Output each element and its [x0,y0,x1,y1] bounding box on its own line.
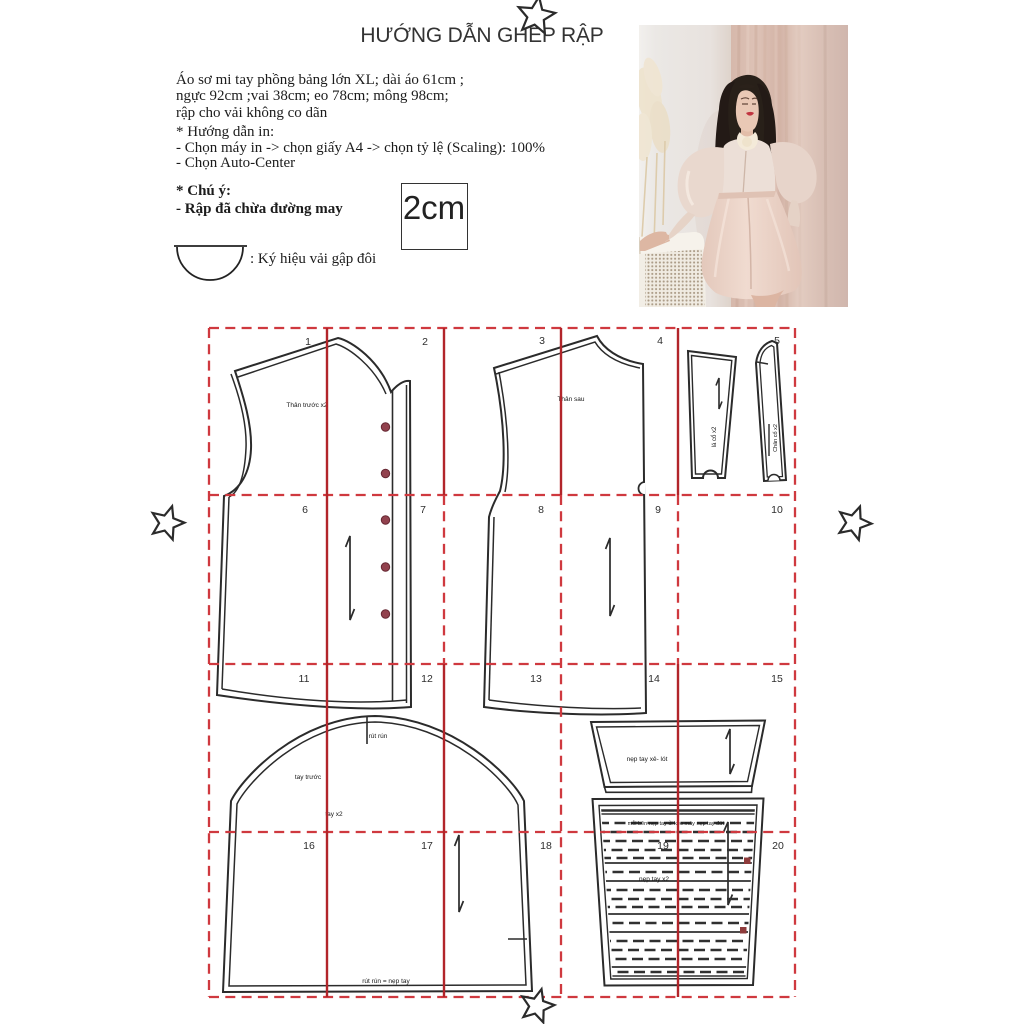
svg-text:9: 9 [655,504,661,516]
svg-text:lá cổ x2: lá cổ x2 [711,426,718,447]
svg-text:17: 17 [421,840,433,852]
svg-text:15: 15 [771,673,783,685]
svg-text:8: 8 [538,504,544,516]
svg-text:rút rún = nẹp tay: rút rún = nẹp tay [362,978,410,985]
svg-text:10: 10 [771,504,783,516]
svg-text:20: 20 [772,840,784,852]
svg-text:18: 18 [540,840,552,852]
svg-text:5: 5 [774,335,780,347]
svg-text:nẹp tay xẻ- lót: nẹp tay xẻ- lót [627,756,668,763]
svg-text:19: 19 [657,840,669,852]
svg-text:11: 11 [299,673,310,685]
svg-text:mỗi bên nẹp tay ủi keo máy nẹp: mỗi bên nẹp tay ủi keo máy nẹp tay đứt [628,820,725,827]
svg-text:nẹp tay x2: nẹp tay x2 [639,876,669,883]
svg-text:6: 6 [302,504,308,516]
svg-text:12: 12 [421,673,433,685]
svg-text:rút rún: rút rún [369,733,388,740]
svg-text:13: 13 [530,673,542,685]
svg-text:16: 16 [303,840,315,852]
svg-text:3: 3 [539,335,545,347]
svg-text:tay trước: tay trước [295,774,322,781]
svg-text:Thân trước x2: Thân trước x2 [286,402,328,409]
svg-text:7: 7 [420,504,426,516]
svg-text:14: 14 [648,673,660,685]
svg-text:Chân cổ x2: Chân cổ x2 [772,424,779,452]
svg-text:4: 4 [657,335,663,347]
svg-text:2: 2 [422,336,428,348]
svg-text:1: 1 [305,336,311,348]
